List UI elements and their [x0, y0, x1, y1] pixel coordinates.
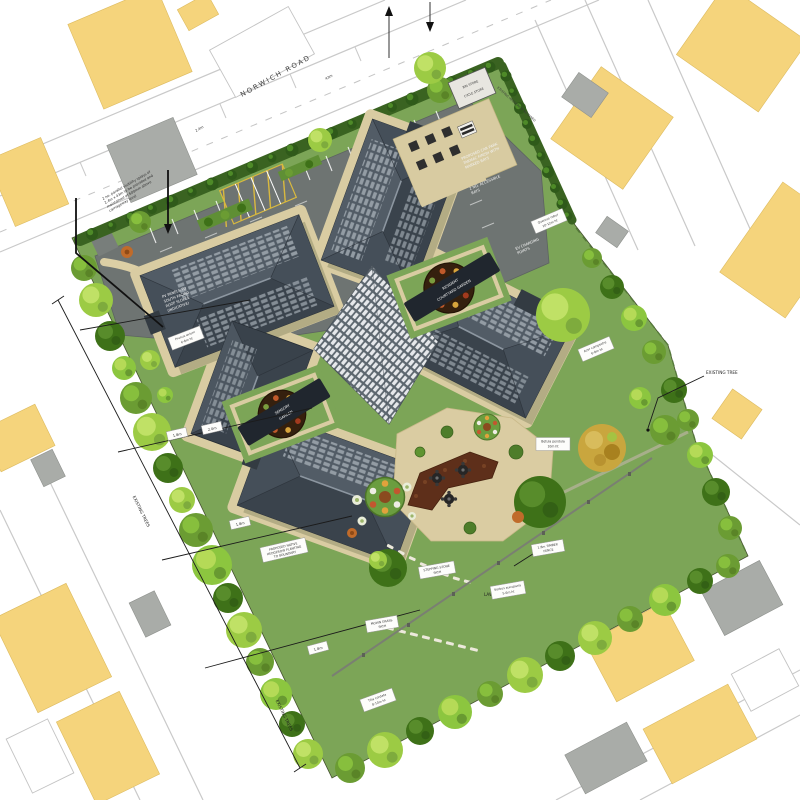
existing-trees-left: EXISTING TREES [132, 495, 152, 528]
context-building [0, 138, 69, 227]
site-plan-canvas: PV PANELS TO SOUTH FACING ROOF SLOPES (I… [0, 0, 800, 800]
context-building [596, 216, 629, 247]
context-building [720, 182, 800, 318]
context-building [565, 722, 647, 794]
site-plan-drawing: PV PANELS TO SOUTH FACING ROOF SLOPES (I… [0, 0, 800, 800]
flower-bed [474, 414, 500, 440]
context-building [68, 0, 192, 109]
context-building [56, 691, 159, 800]
existing-tree-right: EXISTING TREE [706, 370, 738, 375]
flower-bed [366, 478, 405, 517]
splay-dim-b: 43m [325, 73, 334, 81]
svg-text:Betula pendula: Betula pendula [541, 440, 565, 444]
splay-dim-a: 2.4m [195, 125, 205, 133]
context-building [676, 0, 800, 112]
context-building [551, 67, 674, 190]
context-building [712, 389, 762, 439]
orange-shrub-core [125, 250, 130, 255]
context-building [643, 684, 757, 784]
context-building [0, 583, 112, 712]
context-building [177, 0, 218, 31]
svg-text:10m ht: 10m ht [547, 445, 559, 449]
autumn-tree [578, 424, 626, 472]
context-building [129, 591, 171, 637]
tree-tag: Betula pendula 10m ht [536, 438, 570, 451]
